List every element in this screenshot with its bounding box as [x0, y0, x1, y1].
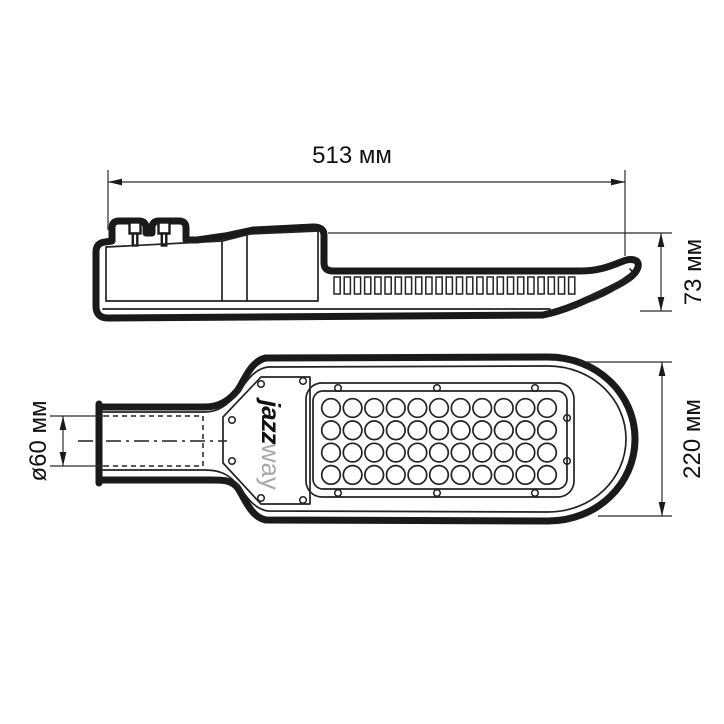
led-lens [343, 399, 362, 418]
led-lens [343, 466, 362, 485]
screw-hole [229, 458, 236, 465]
top-view: jazzway [78, 357, 635, 521]
led-lens [451, 421, 470, 440]
dim-label-length: 513 мм [312, 142, 392, 169]
led-lens [473, 443, 492, 462]
led-lens [365, 466, 384, 485]
screw-hole [300, 378, 307, 385]
screw-hole [335, 490, 342, 497]
led-lens [430, 421, 449, 440]
led-lens [408, 443, 427, 462]
led-lens [473, 399, 492, 418]
led-lens [343, 443, 362, 462]
screw-stem-left [133, 234, 138, 246]
led-lens [387, 443, 406, 462]
led-grid [322, 399, 557, 485]
led-lens [365, 399, 384, 418]
screw-hole [229, 417, 236, 424]
led-lens [408, 421, 427, 440]
logo-way: way [256, 443, 286, 490]
led-lens [516, 466, 535, 485]
led-lens [430, 466, 449, 485]
dim-label-pipe-diameter: ø60 мм [25, 400, 52, 481]
jazzway-logo: jazzway [256, 397, 286, 490]
led-lens [365, 421, 384, 440]
led-lens [387, 466, 406, 485]
led-lens [322, 466, 341, 485]
screw-hole [258, 495, 265, 502]
led-lens [516, 443, 535, 462]
led-lens [495, 466, 514, 485]
led-lens [451, 399, 470, 418]
cooling-fins [334, 277, 575, 294]
drawing-canvas: jazzway 513 мм 73 мм 220 мм ø60 мм [0, 0, 724, 724]
logo-jazz: jazz [256, 397, 286, 445]
screw-hole [434, 490, 441, 497]
led-lens [516, 421, 535, 440]
led-lens [451, 466, 470, 485]
led-lens [343, 421, 362, 440]
led-lens [473, 421, 492, 440]
led-lens [408, 466, 427, 485]
led-lens [516, 399, 535, 418]
led-lens [322, 443, 341, 462]
screw-hole [532, 490, 539, 497]
side-outer-outline [96, 221, 638, 318]
led-lens [495, 421, 514, 440]
led-lens [495, 443, 514, 462]
led-lens [365, 443, 384, 462]
screw-head-left [130, 223, 141, 234]
side-view [96, 221, 638, 318]
led-lens [538, 443, 557, 462]
led-lens [538, 421, 557, 440]
led-lens [322, 399, 341, 418]
screw-hole [300, 497, 307, 504]
screw-head-right [159, 223, 170, 234]
dim-label-height: 73 мм [680, 239, 707, 305]
led-lens [430, 443, 449, 462]
street-light-technical-drawing: jazzway 513 мм 73 мм 220 мм ø60 мм [0, 0, 724, 724]
led-lens [430, 399, 449, 418]
led-lens [387, 421, 406, 440]
dim-width: 220 мм [580, 362, 706, 516]
led-lens [538, 399, 557, 418]
led-lens [322, 421, 341, 440]
led-lens [408, 399, 427, 418]
dim-label-width: 220 мм [679, 399, 706, 479]
screw-hole [258, 381, 265, 388]
led-lens [473, 466, 492, 485]
led-lens [495, 399, 514, 418]
led-lens [538, 466, 557, 485]
led-lens [387, 399, 406, 418]
led-lens [451, 443, 470, 462]
